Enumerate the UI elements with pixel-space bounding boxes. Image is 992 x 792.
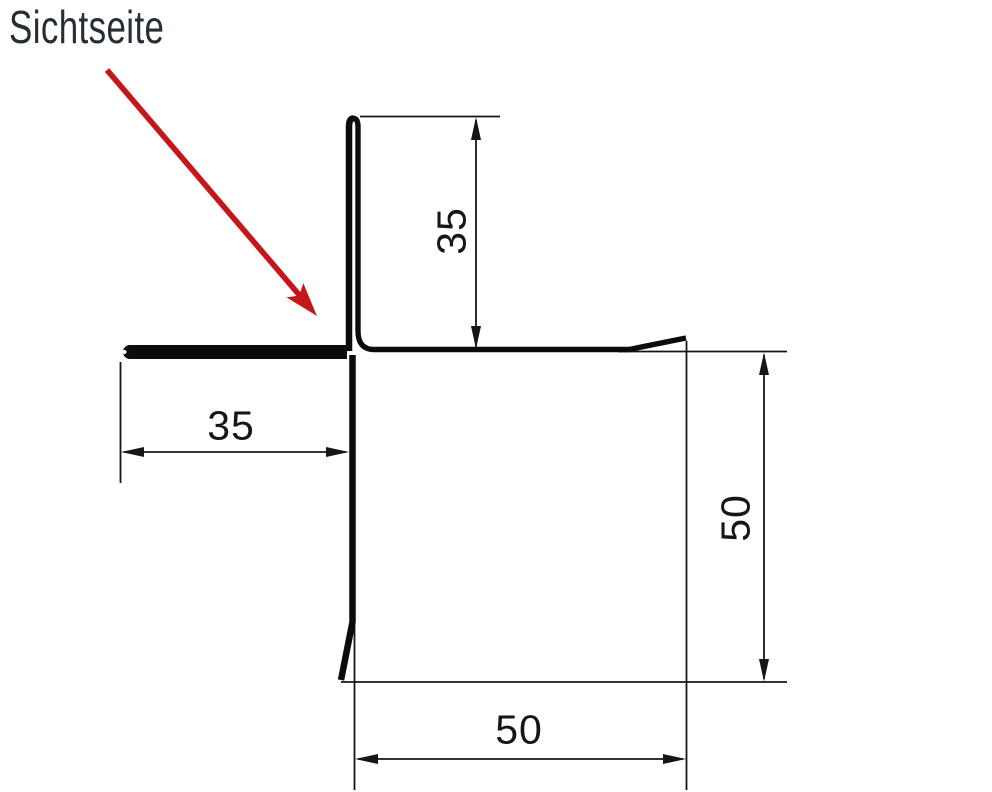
view-side-arrow-icon <box>107 70 317 316</box>
technical-drawing-canvas: Sichtseite 35 35 50 50 <box>0 0 992 792</box>
profile-top-hem-outer <box>349 119 354 352</box>
dimension-label-left-leg: 35 <box>207 403 255 450</box>
profile-drawing-svg <box>0 0 992 792</box>
profile-outline <box>123 119 687 681</box>
arrowhead-left35-left <box>121 447 144 457</box>
profile-left-hem <box>123 345 347 359</box>
profile-left-hem-fold-dot <box>123 350 127 354</box>
profile-bottom-leg <box>341 355 353 680</box>
arrowhead-right50-up <box>759 353 769 376</box>
dimension-label-right-depth: 50 <box>713 494 760 542</box>
arrowhead-left35-right <box>326 447 349 457</box>
profile-top-hem-inner-and-right-leg <box>354 119 687 350</box>
arrowhead-bottom50-right <box>663 754 686 764</box>
arrowhead-top35-down <box>471 326 481 349</box>
arrowhead-bottom50-left <box>355 754 378 764</box>
view-side-label: Sichtseite <box>9 2 164 53</box>
dimension-label-bottom-width: 50 <box>495 707 543 754</box>
dimension-label-top-leg: 35 <box>429 207 476 255</box>
arrowhead-top35-up <box>471 117 481 140</box>
arrowhead-right50-down <box>759 659 769 682</box>
view-side-arrow-shaft <box>107 70 301 297</box>
